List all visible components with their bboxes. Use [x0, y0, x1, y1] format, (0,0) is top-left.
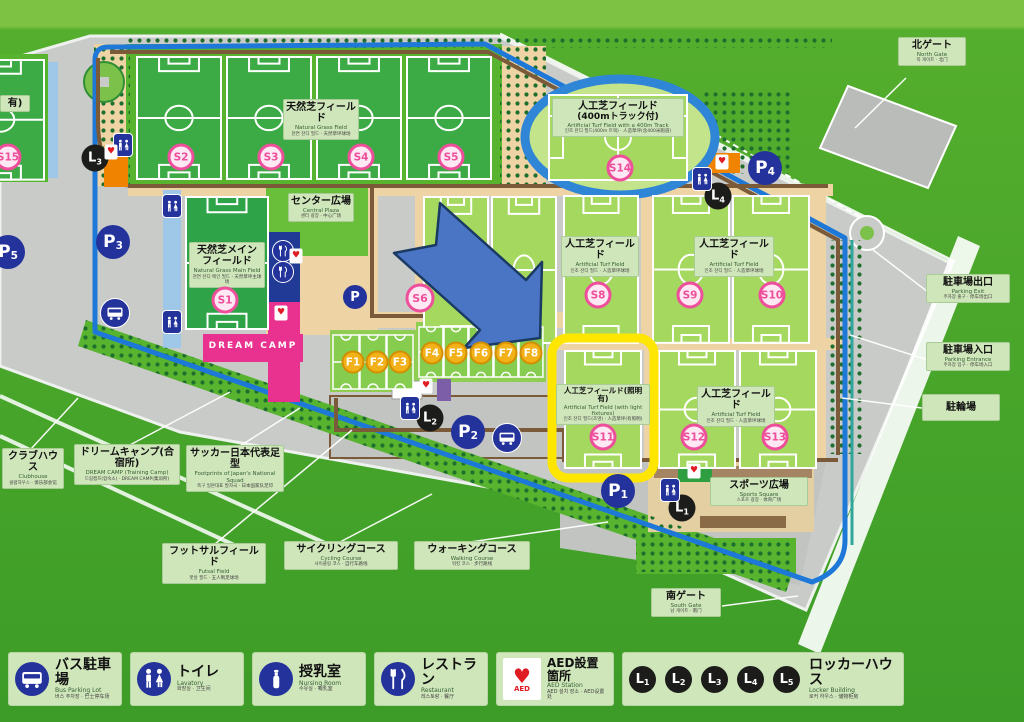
- field-marker-s9: S9: [677, 282, 704, 309]
- futsal-marker-f6: F6: [470, 342, 493, 365]
- futsal-marker-f5: F5: [445, 342, 468, 365]
- legend-aed-station: ♥AED AED設置箇所AED StationAED 설치 장소 · AED设置…: [496, 652, 614, 706]
- locker-marker-l1: L1: [629, 666, 656, 693]
- futsal-marker-f8: F8: [520, 342, 543, 365]
- locker-marker-l2: L2: [665, 666, 692, 693]
- label-south-gate: 南ゲート South Gate 남 게이트 · 南门: [651, 588, 721, 617]
- futsal-marker-f1: F1: [342, 351, 365, 374]
- callout-bicycle-parking: 駐輪場: [922, 394, 1000, 421]
- facility-map: S6 天然芝フィールド Natural Grass Field 천연 잔디 필드…: [0, 0, 1024, 722]
- field-marker-s12: S12: [681, 424, 708, 451]
- label-turf-s12-s13: 人工芝フィールド Artificial Turf Field 인조 잔디 필드 …: [697, 386, 775, 427]
- callout-dream-camp: ドリームキャンプ(合宿所) DREAM CAMP (Training Camp)…: [74, 444, 180, 485]
- label-natural-grass-field: 天然芝フィールド Natural Grass Field 천연 잔디 필드 · …: [283, 99, 359, 140]
- aed-icon: ♥: [716, 155, 729, 170]
- field-marker-s6: S6: [407, 285, 433, 311]
- locker-marker-l3: L3: [701, 666, 728, 693]
- callout-cycling-course: サイクリングコース Cycling Course 사이클링 코스 · 自行车路线: [284, 541, 398, 570]
- bus-icon: [492, 423, 522, 453]
- parking-marker-p1: P1: [601, 474, 635, 508]
- futsal-marker-f4: F4: [421, 342, 444, 365]
- aed-icon: ♥: [290, 249, 303, 264]
- toilet-icon: [660, 478, 680, 502]
- dream-camp-sign: DREAM CAMP: [205, 341, 301, 351]
- callout-walking-course: ウォーキングコース Walking Course 워킹 코스 · 步行路线: [414, 541, 530, 570]
- futsal-marker-f2: F2: [366, 351, 389, 374]
- parking-marker-p2: P2: [451, 415, 485, 449]
- label-track-field: 人工芝フィールド (400mトラック付) Artificial Turf Fie…: [552, 98, 684, 137]
- label-turf-s11: 人工芝フィールド(照明有) Artificial Turf Field (wit…: [556, 384, 650, 425]
- callout-parking-exit: 駐車場出口 Parking Exit 주차장 출구 · 停车场出口: [926, 274, 1010, 303]
- aed-icon: ♥: [688, 464, 701, 479]
- legend-lavatory: トイレLavatory화장실 · 卫生间: [130, 652, 244, 706]
- field-marker-s3: S3: [258, 144, 285, 171]
- field-marker-s5: S5: [438, 144, 465, 171]
- label-s15-partial: 有): [0, 95, 30, 112]
- parking-marker-p4: P4: [748, 151, 782, 185]
- bus-icon: [100, 298, 130, 328]
- field-marker-s2: S2: [168, 144, 195, 171]
- legend-restaurant: レストランRestaurant레스토랑 · 餐厅: [374, 652, 488, 706]
- field-marker-s13: S13: [762, 424, 789, 451]
- toilet-icon: [400, 396, 420, 420]
- locker-marker-l5: L5: [773, 666, 800, 693]
- field-marker-s11: S11: [590, 424, 617, 451]
- callout-parking-entrance: 駐車場入口 Parking Entrance 주차장 입구 · 停车场入口: [926, 342, 1010, 371]
- locker-marker-l2: L2: [417, 405, 444, 432]
- parking-marker-p: P: [343, 285, 367, 309]
- field-marker-s4: S4: [348, 144, 375, 171]
- legend-bus-parking: バス駐車場Bus Parking Lot버스 주차장 · 巴士停车场: [8, 652, 122, 706]
- callout-futsal-field: フットサルフィールド Futsal Field 풋살 필드 · 五人制足球场: [162, 543, 266, 584]
- futsal-marker-f7: F7: [495, 342, 518, 365]
- label-sports-square: スポーツ広場 Sports Square 스포츠 광장 · 体育广场: [710, 477, 808, 506]
- aed-icon: ♥: [105, 145, 118, 160]
- locker-marker-l4: L4: [737, 666, 764, 693]
- label-center-plaza: センター広場 Central Plaza 센터 광장 · 中心广场: [288, 193, 354, 222]
- aed-icon: ♥: [275, 306, 288, 321]
- bus-icon: [15, 662, 49, 696]
- parking-structure: [820, 86, 956, 188]
- label-turf-s9-s10: 人工芝フィールド Artificial Turf Field 인조 잔디 필드 …: [694, 236, 774, 277]
- svg-text:S6: S6: [412, 292, 428, 305]
- legend-nursing-room: 授乳室Nursing Room수유실 · 哺乳室: [252, 652, 366, 706]
- field-marker-s14: S14: [607, 155, 634, 182]
- field-marker-s1: S1: [212, 287, 239, 314]
- nursing-bottle-icon: [259, 662, 293, 696]
- callout-clubhouse: クラブハウス Clubhouse 클럽하우스 · 俱乐部会馆: [2, 448, 64, 489]
- callout-footprints: サッカー日本代表足型 Footprints of Japan's Nationa…: [186, 445, 284, 492]
- label-turf-s8: 人工芝フィールド Artificial Turf Field 인조 잔디 필드 …: [561, 236, 639, 277]
- parking-marker-p3: P3: [96, 225, 130, 259]
- toilet-icon: [162, 310, 182, 334]
- field-marker-s10: S10: [759, 282, 786, 309]
- field-marker-s8: S8: [585, 282, 612, 309]
- restaurant-icon: [272, 261, 294, 283]
- aed-icon: ♥: [420, 379, 433, 394]
- toilet-icon: [692, 167, 712, 191]
- restaurant-icon: [381, 662, 415, 696]
- futsal-marker-f3: F3: [389, 351, 412, 374]
- aed-icon: ♥AED: [503, 658, 541, 700]
- label-main-field: 天然芝メイン フィールド Natural Grass Main Field 천연…: [189, 242, 265, 288]
- label-north-gate: 北ゲート North Gate 북 게이트 · 北门: [898, 37, 966, 66]
- toilet-icon: [162, 194, 182, 218]
- toilet-icon: [137, 662, 171, 696]
- legend-locker-building: L1 L2 L3 L4 L5 ロッカーハウスLocker Building로커 …: [622, 652, 904, 706]
